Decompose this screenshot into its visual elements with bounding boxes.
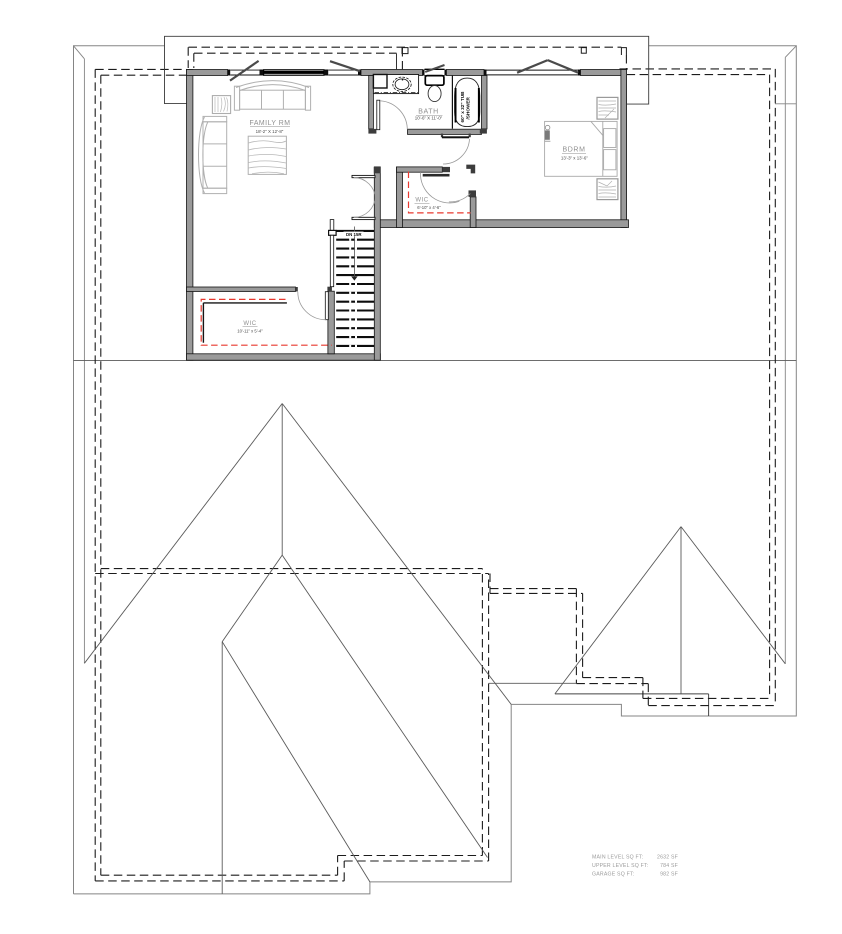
svg-text:UPPER LEVEL SQ FT:: UPPER LEVEL SQ FT: [592, 863, 648, 869]
svg-text:18'-2" X 12'-8": 18'-2" X 12'-8" [256, 129, 284, 134]
svg-text:10'-6" X 11'-0": 10'-6" X 11'-0" [415, 116, 443, 121]
svg-text:GARAGE SQ FT:: GARAGE SQ FT: [592, 872, 634, 878]
svg-text:6'-10" x 4'-6": 6'-10" x 4'-6" [417, 205, 441, 210]
svg-text:MAIN LEVEL SQ FT:: MAIN LEVEL SQ FT: [592, 855, 643, 861]
svg-text:13'-3" x 13'-6": 13'-3" x 13'-6" [561, 156, 588, 161]
svg-text:BATH: BATH [418, 109, 439, 116]
svg-text:WIC: WIC [415, 198, 428, 204]
svg-text:BDRM: BDRM [562, 147, 585, 154]
svg-text:DN 15R: DN 15R [346, 232, 362, 237]
svg-text:982 SF: 982 SF [660, 872, 678, 878]
svg-text:784 SF: 784 SF [660, 863, 678, 869]
svg-text:FAMILY RM: FAMILY RM [249, 120, 290, 127]
svg-text:2632 SF: 2632 SF [657, 855, 678, 861]
svg-text:/SHOWER: /SHOWER [465, 96, 470, 119]
svg-text:10'-11" x 5'-4": 10'-11" x 5'-4" [237, 329, 263, 334]
